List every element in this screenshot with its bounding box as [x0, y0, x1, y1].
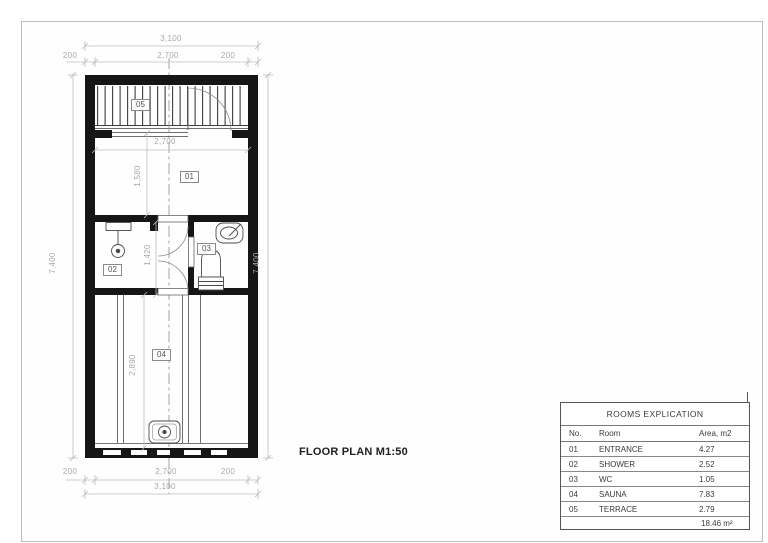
dim-bottom-right: 200	[213, 467, 243, 477]
cell-area: 2.79	[697, 505, 749, 514]
cell-no: 01	[561, 445, 599, 454]
dim-left-overall: 7,400	[48, 241, 58, 285]
dim-entrance-width: 2,700	[140, 137, 190, 147]
table-row: 02 SHOWER 2.52	[561, 457, 749, 472]
dim-bottom-inner: 2,700	[141, 467, 191, 477]
table-row: 05 TERRACE 2.79	[561, 502, 749, 517]
terrace-decking-icon	[95, 86, 248, 129]
cell-room: SHOWER	[599, 460, 697, 469]
cell-room: ENTRANCE	[599, 445, 697, 454]
cell-area: 2.52	[697, 460, 749, 469]
cell-no: 05	[561, 505, 599, 514]
room-label-entrance: 01	[180, 171, 199, 183]
cell-area: 4.27	[697, 445, 749, 454]
col-no: No.	[561, 429, 599, 438]
cell-no: 04	[561, 490, 599, 499]
cell-room: TERRACE	[599, 505, 697, 514]
room-label-wc: 03	[197, 243, 216, 255]
cell-room: WC	[599, 475, 697, 484]
col-area: Area, m2	[697, 429, 749, 438]
room-label-terrace: 05	[131, 99, 150, 111]
col-room: Room	[599, 429, 697, 438]
rooms-table: ROOMS EXPLICATION No. Room Area, m2 01 E…	[560, 402, 750, 530]
table-title: ROOMS EXPLICATION	[561, 403, 749, 426]
cell-area: 7.83	[697, 490, 749, 499]
drawing-sheet: 3,100 200 2,700 200 200 2,700 200 3,100 …	[0, 0, 768, 543]
dim-bottom-overall: 3,100	[140, 482, 190, 492]
front-glazing	[112, 133, 188, 137]
shower-icon	[106, 223, 131, 258]
sink-icon	[216, 223, 243, 243]
dim-top-overall: 3,100	[146, 34, 196, 44]
cell-room: SAUNA	[599, 490, 697, 499]
cell-no: 03	[561, 475, 599, 484]
dim-top-inner: 2,700	[143, 51, 193, 61]
table-row: 03 WC 1.05	[561, 472, 749, 487]
table-header: No. Room Area, m2	[561, 426, 749, 442]
cell-area: 1.05	[697, 475, 749, 484]
dim-bottom-left: 200	[55, 467, 85, 477]
dim-bath-depth: 1,420	[143, 233, 153, 277]
dim-top-left: 200	[55, 51, 85, 61]
drawing-title: FLOOR PLAN M1:50	[299, 446, 408, 458]
table-row: 01 ENTRANCE 4.27	[561, 442, 749, 457]
dim-entrance-depth: 1,580	[133, 154, 143, 198]
dim-right-overall: 7,400	[252, 241, 262, 285]
room-label-shower: 02	[103, 264, 122, 276]
dim-top-right: 200	[213, 51, 243, 61]
cell-no: 02	[561, 460, 599, 469]
toilet-icon	[199, 250, 224, 290]
table-total-row: 18.46 m²	[561, 517, 749, 529]
total-area: 18.46 m²	[701, 519, 733, 528]
sauna-heater-icon	[149, 421, 180, 443]
dim-sauna-depth: 2,890	[128, 343, 138, 387]
room-label-sauna: 04	[152, 349, 171, 361]
table-row: 04 SAUNA 7.83	[561, 487, 749, 502]
